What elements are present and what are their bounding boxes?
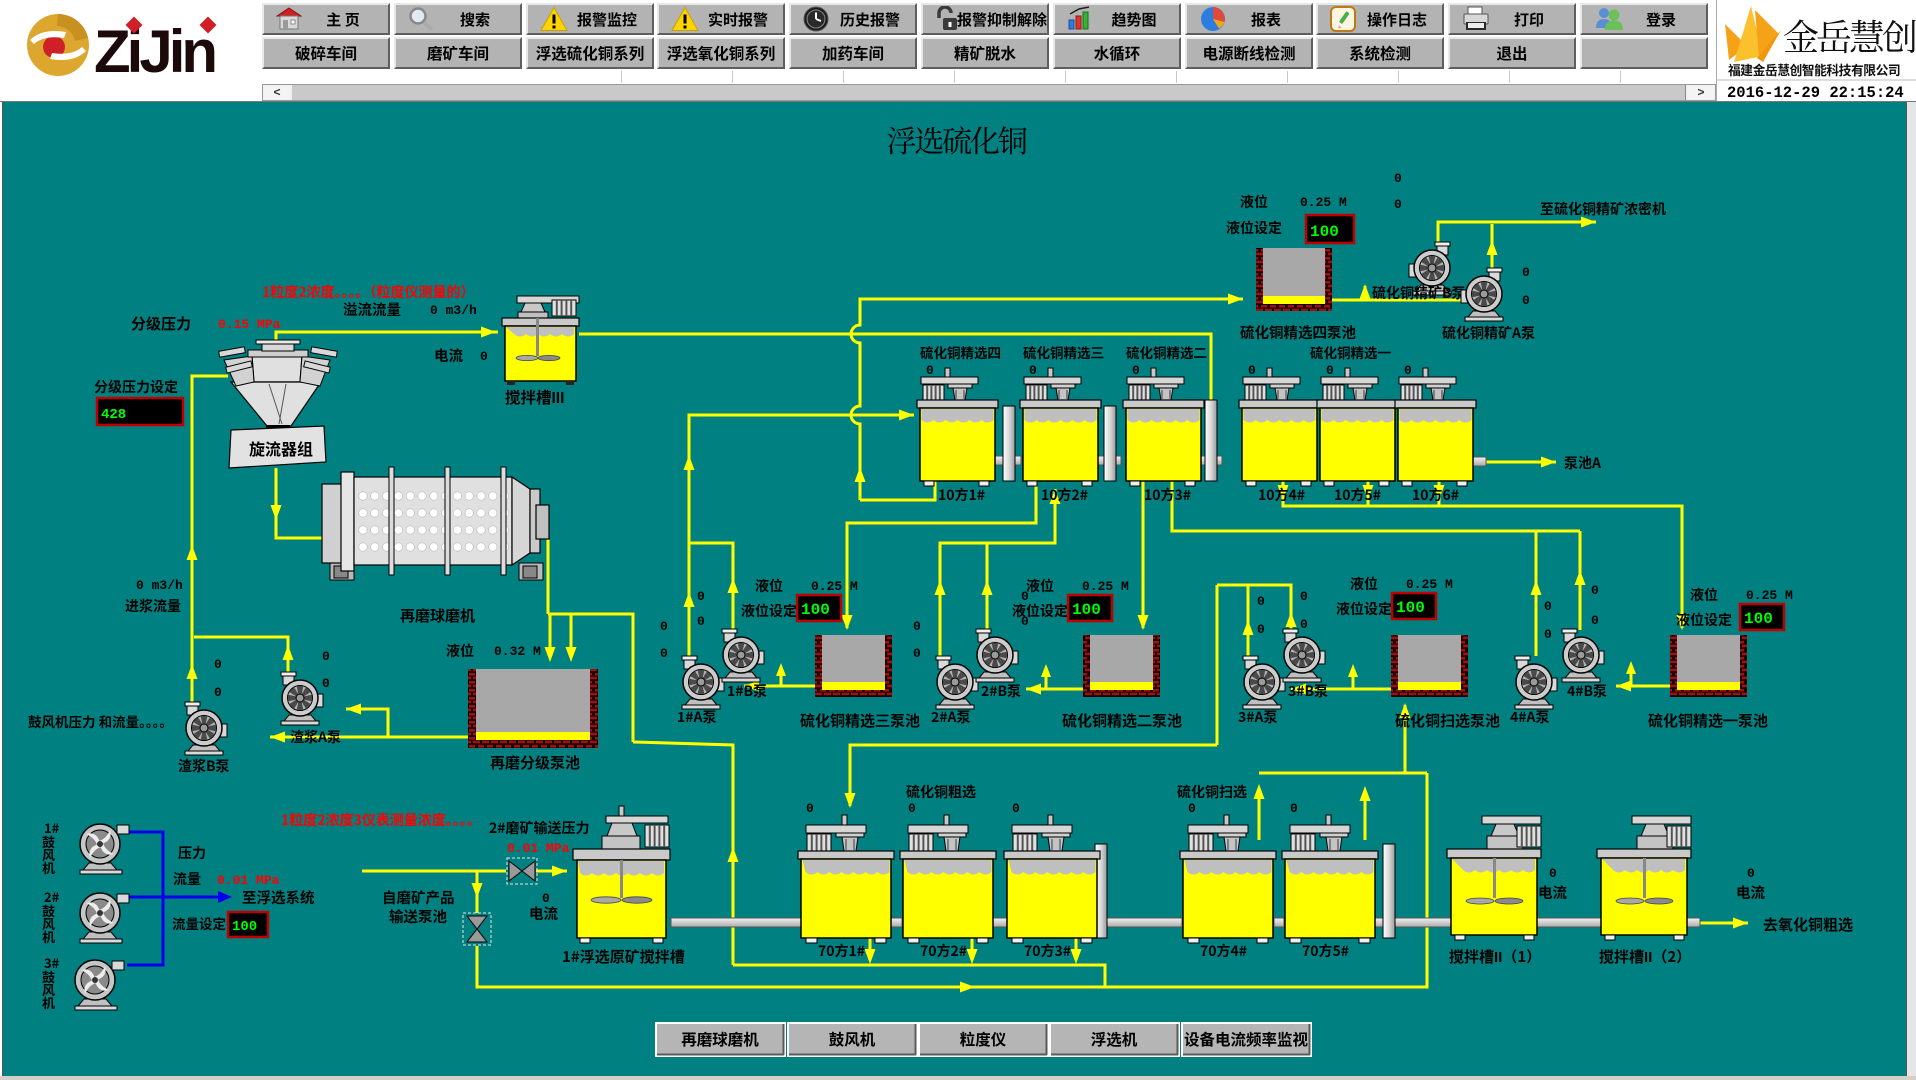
svg-text:液位: 液位 [1240, 192, 1268, 212]
svg-text:机: 机 [42, 927, 55, 946]
svg-text:流量设定: 流量设定 [172, 913, 226, 933]
svg-text:3#B泵: 3#B泵 [1288, 681, 1328, 701]
svg-text:0.15 MPa: 0.15 MPa [218, 317, 281, 332]
svg-text:输送泵池: 输送泵池 [389, 906, 447, 927]
svg-text:压力: 压力 [178, 843, 206, 863]
svg-text:电流: 电流 [1538, 882, 1567, 903]
svg-text:70方2#: 70方2# [920, 941, 967, 961]
svg-text:2#磨矿输送压力: 2#磨矿输送压力 [489, 818, 590, 838]
svg-text:渣浆B泵: 渣浆B泵 [178, 756, 230, 776]
svg-text:10方5#: 10方5# [1334, 485, 1381, 505]
svg-text:10方4#: 10方4# [1258, 485, 1305, 505]
svg-text:至硫化铜精矿浓密机: 至硫化铜精矿浓密机 [1540, 199, 1666, 219]
svg-text:硫化铜精选一泵池: 硫化铜精选一泵池 [1648, 710, 1768, 731]
svg-text:0.01 MPa: 0.01 MPa [217, 873, 280, 888]
svg-text:2016-12-29 22:15:24: 2016-12-29 22:15:24 [1727, 84, 1904, 102]
svg-text:液位: 液位 [1690, 585, 1718, 605]
svg-text:0: 0 [1188, 801, 1196, 816]
svg-text:1粒度2浓度3仪表测量浓度。。。。: 1粒度2浓度3仪表测量浓度。。。。 [281, 810, 481, 830]
svg-text:机: 机 [42, 858, 55, 877]
svg-text:70方5#: 70方5# [1302, 941, 1349, 961]
svg-text:渣浆A泵: 渣浆A泵 [290, 727, 341, 747]
svg-text:0: 0 [1257, 594, 1265, 609]
svg-text:进浆流量: 进浆流量 [125, 596, 181, 616]
svg-text:硫化铜精矿B泵: 硫化铜精矿B泵 [1372, 283, 1466, 303]
svg-text:10方1#: 10方1# [938, 485, 985, 505]
svg-text:70方3#: 70方3# [1024, 941, 1071, 961]
svg-text:100: 100 [1310, 223, 1339, 241]
svg-text:0: 0 [1544, 627, 1552, 642]
svg-text:浮选硫化铜: 浮选硫化铜 [887, 117, 1027, 161]
svg-text:0: 0 [1549, 866, 1557, 881]
svg-text:0: 0 [926, 363, 934, 378]
svg-text:0: 0 [913, 619, 921, 634]
svg-text:0: 0 [697, 589, 705, 604]
svg-text:0: 0 [214, 657, 222, 672]
svg-text:硫化铜粗选: 硫化铜粗选 [906, 782, 976, 802]
svg-text:0.25 M: 0.25 M [1300, 195, 1347, 210]
svg-text:0.25 M: 0.25 M [1082, 579, 1129, 594]
svg-text:液位设定: 液位设定 [1336, 599, 1392, 619]
svg-text:至浮选系统: 至浮选系统 [242, 887, 315, 908]
svg-text:泵池A: 泵池A [1564, 453, 1602, 473]
svg-text:搅拌槽III: 搅拌槽III [505, 386, 564, 408]
svg-text:硫化铜精选三: 硫化铜精选三 [1023, 342, 1104, 362]
svg-text:分级压力: 分级压力 [131, 313, 191, 334]
svg-text:100: 100 [1072, 601, 1101, 619]
svg-text:液位: 液位 [446, 641, 474, 661]
svg-text:1#B泵: 1#B泵 [727, 681, 767, 701]
svg-text:机: 机 [42, 993, 55, 1012]
svg-text:0: 0 [480, 349, 488, 364]
svg-text:0: 0 [1591, 613, 1599, 628]
svg-text:10方3#: 10方3# [1144, 485, 1191, 505]
svg-text:硫化铜扫选泵池: 硫化铜扫选泵池 [1395, 710, 1500, 731]
svg-text:0.25 M: 0.25 M [1406, 577, 1453, 592]
svg-text:0.01 MPa: 0.01 MPa [507, 841, 570, 856]
svg-text:0: 0 [1394, 171, 1402, 186]
svg-text:溢流流量: 溢流流量 [343, 299, 401, 320]
svg-text:再磨球磨机: 再磨球磨机 [400, 605, 475, 626]
svg-text:电流: 电流 [434, 345, 463, 366]
svg-text:3#A泵: 3#A泵 [1238, 707, 1278, 727]
svg-text:4#A泵: 4#A泵 [1510, 707, 1550, 727]
svg-text:ZiJin: ZiJin [94, 4, 214, 82]
svg-text:0: 0 [697, 614, 705, 629]
svg-text:去氧化铜粗选: 去氧化铜粗选 [1763, 914, 1853, 935]
svg-text:0: 0 [1248, 363, 1256, 378]
svg-text:搅拌槽II（1）: 搅拌槽II（1） [1449, 946, 1541, 967]
svg-text:鼓风机压力 和流量。。。。: 鼓风机压力 和流量。。。。 [28, 711, 173, 731]
svg-text:硫化铜精选一: 硫化铜精选一 [1310, 342, 1391, 362]
svg-text:0: 0 [1012, 801, 1020, 816]
svg-text:0: 0 [1591, 583, 1599, 598]
svg-text:0: 0 [660, 619, 668, 634]
svg-text:硫化铜精选四泵池: 硫化铜精选四泵池 [1240, 322, 1356, 343]
svg-text:1#浮选原矿搅拌槽: 1#浮选原矿搅拌槽 [562, 946, 685, 967]
svg-text:液位: 液位 [1350, 574, 1378, 594]
svg-text:0: 0 [1522, 265, 1530, 280]
svg-text:100: 100 [232, 919, 257, 935]
svg-text:0: 0 [1544, 599, 1552, 614]
svg-text:0.25 M: 0.25 M [811, 579, 858, 594]
svg-text:福建金岳慧创智能科技有限公司: 福建金岳慧创智能科技有限公司 [1728, 60, 1900, 79]
svg-text:70方4#: 70方4# [1200, 941, 1247, 961]
svg-text:0: 0 [1522, 293, 1530, 308]
svg-text:0: 0 [1747, 866, 1755, 881]
svg-text:电流: 电流 [529, 903, 558, 924]
svg-text:70方1#: 70方1# [818, 941, 865, 961]
svg-text:4#B泵: 4#B泵 [1567, 681, 1607, 701]
svg-text:0: 0 [1300, 589, 1308, 604]
svg-text:0: 0 [1257, 622, 1265, 637]
svg-text:0: 0 [1326, 363, 1334, 378]
svg-text:0.32 M: 0.32 M [494, 644, 541, 659]
svg-text:自磨矿产品: 自磨矿产品 [382, 887, 455, 908]
svg-text:1#A泵: 1#A泵 [677, 707, 717, 727]
svg-text:硫化铜精选三泵池: 硫化铜精选三泵池 [800, 710, 920, 731]
svg-text:0: 0 [913, 646, 921, 661]
svg-text:再磨球磨机: 再磨球磨机 [681, 1028, 759, 1050]
svg-text:液位设定: 液位设定 [1226, 218, 1282, 238]
svg-text:10方2#: 10方2# [1041, 485, 1088, 505]
svg-text:硫化铜精选四: 硫化铜精选四 [920, 342, 1001, 362]
svg-text:0: 0 [1029, 363, 1037, 378]
svg-text:0: 0 [214, 685, 222, 700]
svg-text:0: 0 [908, 801, 916, 816]
svg-text:电流: 电流 [1736, 882, 1765, 903]
svg-text:0 m3/h: 0 m3/h [430, 303, 477, 318]
svg-text:0: 0 [1404, 363, 1412, 378]
svg-text:硫化铜扫选: 硫化铜扫选 [1177, 782, 1247, 802]
svg-text:0: 0 [1132, 363, 1140, 378]
svg-text:2#B泵: 2#B泵 [981, 681, 1021, 701]
svg-text:分级压力设定: 分级压力设定 [94, 377, 178, 397]
svg-text:鼓风机: 鼓风机 [829, 1028, 876, 1050]
svg-text:0.25 M: 0.25 M [1746, 588, 1793, 603]
svg-text:0: 0 [1290, 801, 1298, 816]
svg-text:粒度仪: 粒度仪 [960, 1028, 1007, 1050]
svg-text:0: 0 [322, 676, 330, 691]
svg-text:金岳慧创: 金岳慧创 [1783, 10, 1916, 61]
svg-text:0: 0 [806, 801, 814, 816]
svg-text:0: 0 [1021, 614, 1029, 629]
svg-text:硫化铜精选二: 硫化铜精选二 [1126, 342, 1207, 362]
svg-text:0: 0 [322, 649, 330, 664]
svg-text:428: 428 [101, 407, 126, 423]
svg-text:100: 100 [801, 601, 830, 619]
svg-text:流量: 流量 [173, 869, 201, 889]
svg-text:液位设定: 液位设定 [741, 601, 797, 621]
svg-text:100: 100 [1744, 610, 1773, 628]
svg-text:浮选机: 浮选机 [1091, 1028, 1138, 1050]
svg-text:液位设定: 液位设定 [1676, 610, 1732, 630]
svg-text:再磨分级泵池: 再磨分级泵池 [490, 752, 580, 773]
svg-text:10方6#: 10方6# [1412, 485, 1459, 505]
svg-text:0: 0 [1021, 589, 1029, 604]
svg-text:搅拌槽II（2）: 搅拌槽II（2） [1599, 946, 1691, 967]
svg-text:0: 0 [660, 646, 668, 661]
svg-text:0: 0 [1394, 197, 1402, 212]
svg-text:2#A泵: 2#A泵 [931, 707, 971, 727]
svg-text:设备电流频率监视: 设备电流频率监视 [1184, 1028, 1309, 1050]
svg-text:液位: 液位 [1026, 576, 1054, 596]
svg-text:硫化铜精选二泵池: 硫化铜精选二泵池 [1062, 710, 1182, 731]
svg-text:硫化铜精矿A泵: 硫化铜精矿A泵 [1442, 323, 1535, 343]
svg-text:0 m3/h: 0 m3/h [136, 578, 183, 593]
svg-text:0: 0 [1300, 617, 1308, 632]
svg-text:旋流器组: 旋流器组 [249, 436, 313, 460]
svg-text:100: 100 [1396, 599, 1425, 617]
svg-text:液位: 液位 [755, 576, 783, 596]
